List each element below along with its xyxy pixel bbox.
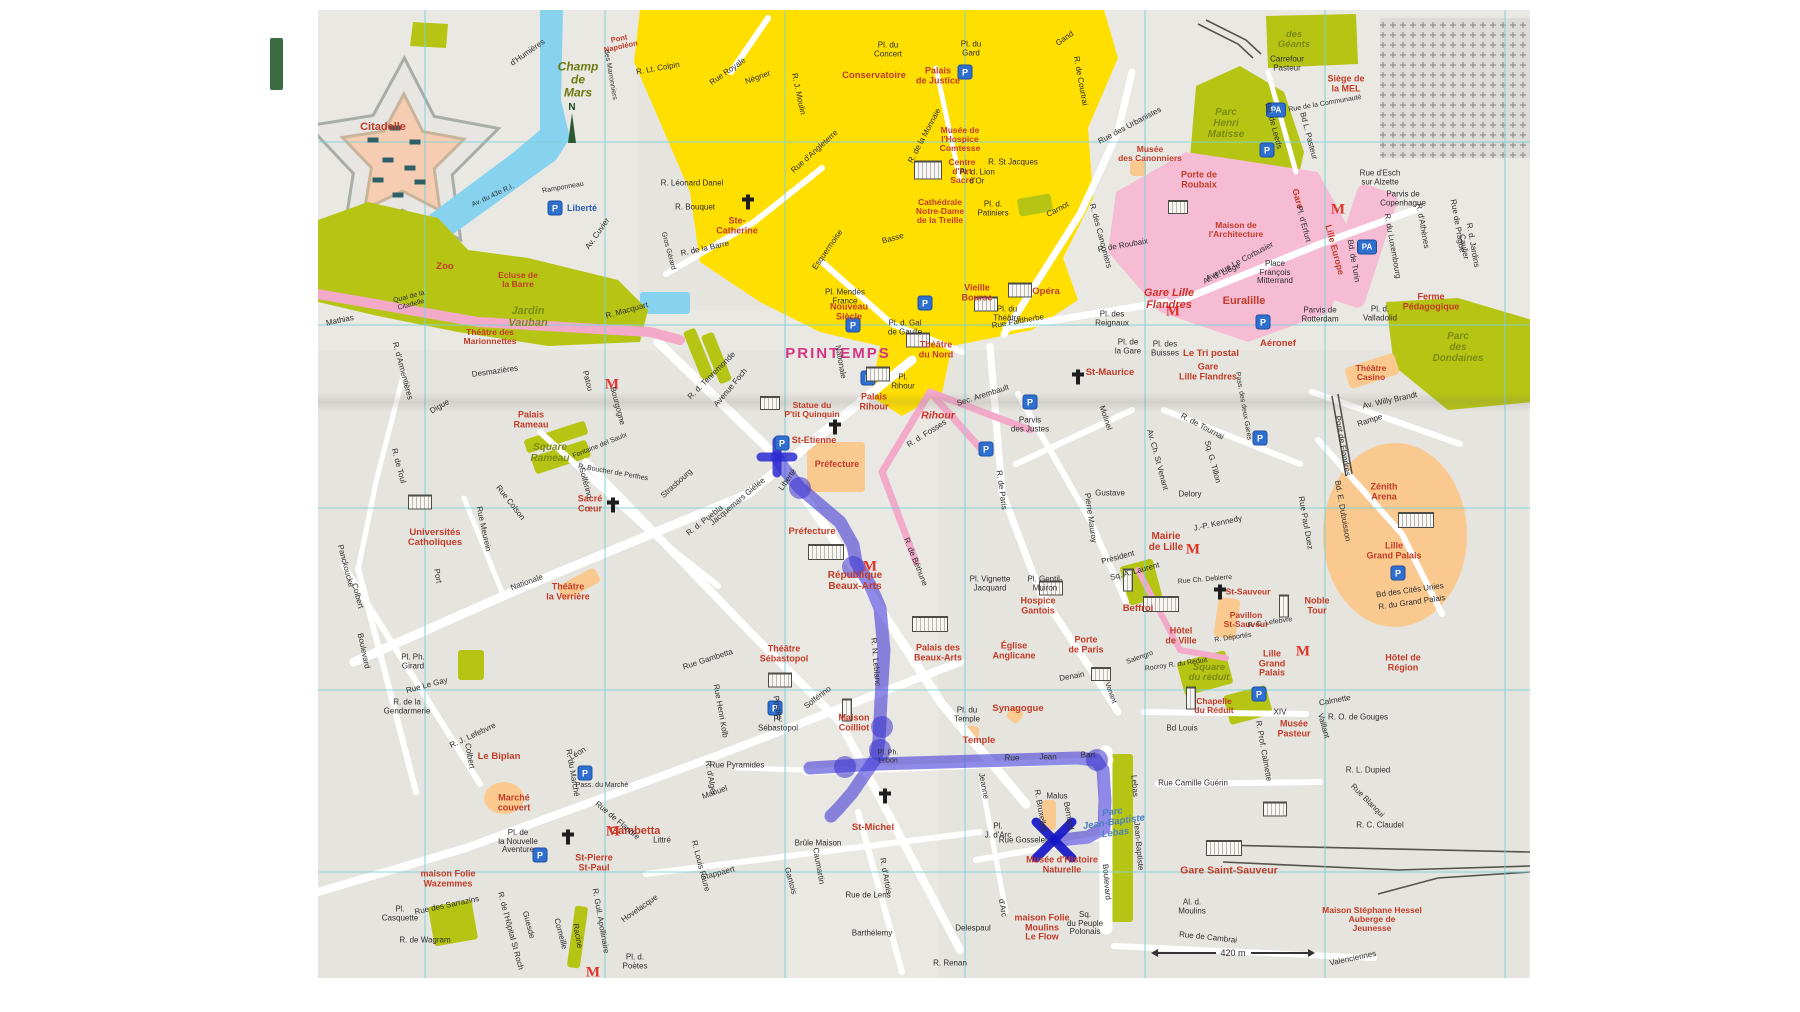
poi-label: Marché couvert (498, 793, 531, 812)
poi-label: Palais Rameau (513, 410, 548, 429)
street-label: Place François Mitterrand (1257, 260, 1293, 286)
street-label: Sec. Arembault (956, 384, 1010, 409)
street-label: Rue de Lens (845, 892, 890, 901)
scale-arrow-right-icon (1308, 949, 1315, 957)
poi-label: Centre d'Art Sacré (949, 158, 976, 186)
street-label: R. Renan (933, 960, 967, 969)
parking-icon: P (846, 318, 861, 333)
street-label: R. Léonard Danel (661, 180, 724, 189)
street-label: Solférino (577, 467, 594, 500)
poi-label: Temple (963, 736, 996, 746)
building-icon (974, 297, 998, 312)
street-label: Ramponneau (542, 181, 585, 196)
street-label: R. de la Barre (680, 240, 730, 259)
street-label: Littré (653, 837, 671, 846)
street-label: R. de Paris (994, 470, 1008, 510)
street-label: Bernard (1061, 801, 1074, 831)
street-label: Bd L. Pasteur (1298, 111, 1319, 160)
park-label: Champ de Mars (558, 61, 599, 100)
building-icon (760, 396, 780, 410)
metro-icon: M (1166, 305, 1180, 320)
poi-label: Hospice Gantois (1020, 596, 1055, 615)
street-label: Rue Pyramides (710, 762, 765, 771)
building-icon (1123, 569, 1133, 592)
parking-icon: P (1260, 143, 1275, 158)
poi-label: Le Tri postal (1183, 349, 1239, 359)
street-label: Jeanne (976, 772, 989, 799)
poi-label: Musée des Canonniers (1118, 145, 1182, 163)
street-label: R. d'Armentières (390, 341, 414, 401)
street-label: R. de Toul (389, 448, 407, 485)
poi-label: Aéronef (1260, 339, 1296, 349)
street-label: Rue des Urbanistes (1097, 106, 1163, 147)
street-label: Pl. Sébastopol (758, 715, 798, 732)
street-label: R. St Jacques (988, 159, 1038, 168)
street-label: Bd Louis (1166, 725, 1197, 734)
poi-label: Ecluse de la Barre (498, 271, 538, 289)
parking-icon: P (1252, 687, 1267, 702)
street-label: R. des Canonniers (1087, 203, 1112, 269)
metro-icon: M (606, 825, 620, 840)
street-label: Fontaine del Saulx (572, 432, 629, 461)
street-label: Gantois (782, 867, 797, 896)
street-label: Pl. des Reignaux (1095, 310, 1129, 327)
building-icon (866, 367, 890, 382)
street-label: R. C. Lefebvre (1247, 616, 1293, 630)
poi-label: Le Biplan (478, 752, 521, 762)
lille-tourist-map[interactable]: MMMMMMMMPPPPPPPPPPPPPPPPPAPACitadelleZoo… (318, 10, 1530, 978)
street-label: R. Guil. Apollinaire (590, 888, 610, 954)
parking-icon: P (1253, 431, 1268, 446)
street-label: Solférino (803, 685, 833, 711)
street-label: Rue de Cambrai (1179, 931, 1238, 946)
poi-label: Théâtre Sébastopol (760, 644, 809, 663)
building-icon (1091, 667, 1111, 681)
parking-icon: P (979, 442, 994, 457)
street-label: R. d'Athènes (1414, 203, 1430, 249)
street-label: Gustave (1095, 490, 1125, 499)
street-label: R. N. Leblanc (869, 637, 882, 686)
street-label: R. d'Alger (703, 760, 718, 796)
street-label: Rue Blanqui (1349, 783, 1386, 820)
building-icon (408, 495, 432, 510)
building-icon (1263, 802, 1287, 817)
street-label: Desmazières (471, 364, 518, 379)
street-label: R. de la Monnaie (907, 107, 943, 164)
north-compass: N (560, 102, 584, 143)
poi-label: maison Folie Moulins Le Flow (1014, 913, 1069, 942)
poi-label: Gare (1290, 188, 1305, 210)
street-label: Gros Gérard (659, 231, 676, 271)
building-icon (1039, 581, 1063, 596)
street-label: R. d. Jardins Caulier (1454, 214, 1482, 278)
street-label: R. du Grand Palais (1378, 594, 1446, 612)
street-label: Pl. des Buisses (1151, 340, 1179, 357)
street-label: Al. d. Liège (1202, 262, 1242, 287)
building-icon (405, 166, 416, 171)
street-label: R. Bouquet (675, 204, 715, 213)
street-label: R. C. Claudel (1356, 822, 1404, 831)
poi-label: Chapelle du Réduit (1194, 697, 1233, 715)
parking-icon: P (958, 65, 973, 80)
street-label: Pierre Mauroy (1082, 493, 1098, 544)
street-label: des Marronniers (602, 49, 618, 100)
street-label: Rue Paul Duez (1296, 496, 1314, 550)
street-label: Hovelacque (620, 893, 660, 924)
street-label: Nationale (833, 345, 847, 380)
street-label: R. Macquart (605, 301, 649, 321)
street-label: Pl. Vignette Jacquard (970, 575, 1011, 592)
parking-relay-icon: PA (1357, 240, 1377, 255)
metro-icon: M (605, 378, 619, 393)
street-label: Vonant (1103, 681, 1118, 704)
poi-label: Zoo (436, 262, 453, 272)
poi-label: Palais des Beaux-Arts (914, 643, 962, 662)
parking-icon: P (548, 201, 563, 216)
poi-label: St-Etienne (792, 436, 837, 446)
street-label: Rue Ch. Debierre (1178, 574, 1233, 586)
building-icon (842, 699, 852, 722)
street-label: Rampe (1356, 413, 1383, 429)
scale-bar: 420 m (1151, 948, 1315, 958)
street-label: R. du Luxembourg (1382, 213, 1402, 279)
street-label: Rue Le Gay (405, 676, 448, 695)
street-label: Négrier (744, 69, 772, 86)
street-label: Stappaert (700, 865, 736, 882)
street-label: Malus (1046, 793, 1067, 802)
parking-icon: P (1391, 566, 1406, 581)
building-icon (906, 333, 930, 348)
street-label: Sq. A. Laurent (1109, 561, 1160, 582)
poi-label: Noble Tour (1304, 596, 1329, 615)
street-label: Sq. du Peuple Polonais (1067, 911, 1103, 937)
street-label: Rue Colson (494, 484, 527, 522)
poi-label: Sacré Cœur (578, 494, 603, 513)
street-label: Rue de la Communauté (1288, 94, 1362, 114)
parking-icon: P (578, 766, 593, 781)
poi-label: Palais de Justice (916, 66, 960, 85)
poi-label: Hôtel de Ville (1165, 626, 1196, 645)
poi-label: Hôtel de Région (1385, 653, 1421, 672)
street-label: Jean-Baptiste (1132, 821, 1145, 870)
parking-icon: P (775, 436, 790, 451)
poi-label: Musée d'Histoire Naturelle (1026, 855, 1098, 874)
poi-label: Euralille (1223, 296, 1266, 308)
street-label: Parvis des Justes (1011, 416, 1049, 433)
street-label: R. d. Puebla (685, 504, 725, 538)
street-label: Pl. Ph. Lebon (878, 749, 899, 764)
poi-label: Opéra (1032, 287, 1059, 297)
street-label: Pl. d. Valladolid (1363, 305, 1397, 322)
street-label: Pass. des deux Gares (1233, 371, 1252, 440)
street-label: Vaillant (1316, 712, 1331, 739)
poi-label: Lille Europe (1323, 224, 1346, 276)
street-label: Colbert (349, 582, 364, 609)
street-label: Esquermoise (811, 228, 845, 271)
church-cross-icon (833, 420, 837, 435)
compass-letter: N (560, 102, 584, 113)
street-label: Pl. d. Lion d'Or (959, 168, 995, 185)
map-labels-layer: MMMMMMMMPPPPPPPPPPPPPPPPPAPACitadelleZoo… (318, 10, 1530, 978)
street-label: XIV (1274, 709, 1287, 718)
street-label: Molinel (1097, 405, 1113, 432)
park-label: Square Rameau (531, 443, 570, 465)
street-label: Boulevard (355, 632, 371, 669)
street-label: Pl. Mendès France (825, 288, 865, 305)
street-label: Port (431, 568, 442, 584)
street-label: Pl. J. d'Arc (985, 822, 1011, 839)
poi-label: maison Folie Wazemmes (420, 869, 475, 888)
poi-label: Palais Rihour (860, 392, 889, 411)
street-label: Racine (571, 923, 584, 949)
street-label: R. Louis Faure (689, 840, 711, 893)
street-label: Pl. du Concert (874, 41, 902, 58)
parking-icon: P (1256, 315, 1271, 330)
street-label: R. Bruxelles (1032, 789, 1048, 833)
street-label: R. de l'Hôpital St Roch (495, 891, 524, 971)
street-label: R. d. Fosses (906, 418, 949, 449)
poi-label: Préfecture (789, 527, 836, 537)
street-label: Rocroy R. du Réduit (1144, 657, 1207, 673)
street-label: Rue Meurein (474, 506, 492, 553)
street-label: Rue Gosselet (999, 837, 1047, 846)
park-label: Square du réduit (1189, 663, 1230, 684)
street-label: R. J. Lefebvre (449, 722, 498, 751)
poi-label: Universités Catholiques (408, 528, 462, 549)
poi-label: St-Sauveur (1226, 587, 1271, 596)
street-label: Pl. Casquette (382, 905, 418, 922)
street-label: Lebas (1129, 775, 1139, 797)
street-label: Rue Faidherbe (991, 313, 1045, 331)
street-label: Delory (1178, 491, 1201, 500)
street-label: R. d'Artois (878, 857, 893, 895)
street-label: Pl. d. Patiniers (977, 200, 1008, 217)
metro-icon: M (1331, 203, 1345, 218)
street-label: Pont de Flandres (1332, 415, 1351, 477)
scale-bar-text: 420 m (1216, 948, 1251, 958)
street-label: R. de Béthune (901, 537, 928, 588)
street-label: Pl. d'Erfurt (1294, 205, 1312, 243)
building-icon (1168, 200, 1188, 214)
building-icon (912, 616, 948, 632)
street-label: Pl. du Gard (961, 40, 981, 57)
street-label: Pl. Rihour (891, 373, 915, 390)
street-label: Manuel (701, 784, 729, 801)
park-label: des Géants (1278, 30, 1310, 51)
poi-label: Pont Napoléon (602, 32, 639, 55)
poi-label: Porte de Roubaix (1181, 170, 1217, 189)
poi-label: Mairie de Lille (1149, 532, 1183, 554)
poi-label: St-Pierre St-Paul (575, 853, 613, 872)
church-cross-icon (611, 498, 615, 513)
street-label: Pl. Ph. Girard (401, 653, 425, 670)
poi-label: Zénith Arena (1371, 482, 1398, 501)
street-label: Liberté (777, 468, 798, 493)
poi-label: Église Anglicane (992, 641, 1035, 660)
street-label: Rue Royale (708, 56, 747, 87)
poi-label: Synagogue (992, 704, 1043, 714)
building-icon (768, 673, 792, 688)
metro-icon: M (1186, 543, 1200, 558)
street-label: R. Prof. Calmette (1253, 720, 1272, 782)
street-label: Colbert (463, 743, 476, 770)
street-label: Caumartin (811, 847, 826, 885)
street-label: Rue d'Esch sur Alzette (1360, 169, 1401, 186)
street-label: Avenue Foch (713, 367, 750, 409)
street-label: Rue Henri Kolb (711, 684, 729, 739)
street-label: R. Déportés (1214, 632, 1252, 645)
street-label: Pl. d. Poètes (623, 953, 648, 970)
metro-icon: M (863, 560, 877, 575)
park-label: Parc Jean-Baptiste Lebas (1081, 803, 1147, 842)
poi-label: Théâtre la Verrière (546, 582, 590, 601)
street-label: Nationale (510, 573, 545, 593)
street-label: R. d. Tenremonde (687, 351, 738, 402)
street-label: Bart (1081, 752, 1096, 761)
poi-label: Gare Lille Flandres (1179, 362, 1237, 381)
poi-label: Lille Grand Palais (1366, 541, 1421, 560)
building-icon (1279, 595, 1289, 618)
street-label: d'Arc (996, 898, 1008, 917)
poi-label: Siège de la MEL (1327, 74, 1364, 93)
poi-label: Lille Grand Palais (1259, 649, 1286, 678)
building-icon (808, 544, 844, 560)
building-icon (415, 180, 426, 185)
poi-label: Gare Saint-Sauveur (1180, 865, 1277, 876)
poi-label: Théâtre Casino (1356, 364, 1387, 382)
church-cross-icon (566, 830, 570, 845)
church-cross-icon (746, 195, 750, 210)
street-label: R. de Courtrai (1071, 56, 1088, 107)
street-label: Delespaul (955, 925, 991, 934)
street-label: Jacquemars Giélée (709, 477, 767, 528)
metro-icon: M (1296, 645, 1310, 660)
street-label: Boulevard (1100, 864, 1112, 901)
street-label: Rue d'Angleterre (790, 129, 840, 175)
street-label: Pass. du Marché (576, 782, 629, 790)
street-label: Guesde (520, 910, 536, 939)
store-label: PRINTEMPS (785, 346, 891, 362)
building-icon (368, 138, 379, 143)
street-label: Rue (1005, 755, 1020, 764)
park-label: Parc des Dondaines (1432, 332, 1483, 364)
poi-label: Préfecture (815, 460, 860, 470)
street-label: R. Lt. Colpin (636, 61, 681, 77)
street-label: Strasbourg (660, 468, 695, 501)
street-label: Pl. de la Gare (1115, 338, 1141, 355)
street-label: J.-P. Kennedy (1193, 515, 1243, 534)
building-icon (1398, 512, 1434, 528)
street-label: Rue des Sarrazins (414, 895, 480, 917)
poi-label: Ste- Catherine (716, 216, 758, 235)
scale-arrow-left-icon (1151, 949, 1158, 957)
building-icon (1143, 596, 1179, 612)
street-label: Gand (1055, 30, 1076, 48)
street-label: Digue (429, 398, 451, 416)
street-label: Patou (580, 370, 594, 392)
poi-label: Pavillon St-Sauveur (1224, 611, 1269, 629)
compass-arrow-icon (568, 113, 576, 143)
street-label: Bd. E. Dubuisson (1332, 480, 1351, 542)
poi-label: Maison Stéphane Hessel Auberge de Jeunes… (1322, 906, 1422, 934)
street-label: Basse (881, 232, 905, 246)
poi-label: Théâtre des Marionnettes (464, 328, 517, 346)
street-label: Léon (568, 746, 588, 763)
street-label: R. de la Gendarmerie (384, 698, 431, 715)
street-label: Brûle Maison (795, 840, 842, 849)
street-label: Valenciennes (1329, 950, 1377, 968)
park-label: Jardin Vauban (508, 306, 547, 330)
street-label: Av. Willy Brandt (1362, 391, 1418, 411)
street-label: Liberté (567, 204, 597, 214)
street-label: Calmette (1318, 694, 1351, 708)
street-label: R. J. Moulin (789, 72, 806, 115)
street-label: Barthélemy (852, 930, 892, 939)
metro-icon: M (586, 966, 600, 979)
street-label: Mathias (325, 314, 354, 328)
street-label: Corneille (552, 918, 569, 951)
street-label: Carnot (1045, 201, 1070, 220)
street-label: R. de Wagram (399, 937, 450, 946)
poi-label: St-Maurice (1086, 368, 1135, 378)
street-label: R. de Tournai (1179, 412, 1225, 442)
street-label: Rue Camille Guérin (1158, 780, 1228, 789)
poi-label: Musée Pasteur (1277, 719, 1310, 738)
street-label: Bd des Cités Unies (1376, 582, 1445, 600)
street-label: Rue Gambetta (682, 648, 734, 672)
park-label: Parc Henri Matisse (1208, 108, 1245, 140)
street-label: Av. Cuvier (584, 217, 612, 252)
street-label: Pl. du Temple (954, 706, 980, 723)
poi-label: St-Michel (852, 823, 894, 833)
church-cross-icon (1076, 370, 1080, 385)
street-label: Parvis de Copenhague (1380, 190, 1426, 207)
street-label: d'Humières (509, 38, 547, 68)
building-icon (373, 178, 384, 183)
parking-icon: P (768, 701, 783, 716)
poi-label: Porte de Paris (1068, 635, 1103, 654)
building-icon (914, 161, 942, 180)
map-edge-strip (270, 38, 283, 90)
building-icon (1206, 840, 1242, 856)
parking-icon: P (533, 848, 548, 863)
parking-icon: P (1023, 395, 1038, 410)
street-label: Parvis de Rotterdam (1301, 306, 1338, 323)
street-label: Av. Ch. St Venant (1145, 429, 1169, 492)
building-icon (390, 126, 401, 131)
street-label: Quai de la Citadelle (393, 290, 428, 313)
building-icon (1186, 687, 1196, 710)
building-icon (1008, 283, 1032, 298)
church-cross-icon (883, 789, 887, 804)
street-label: Président (1101, 549, 1136, 566)
poi-label: Cathédrale Notre-Dame de la Treille (916, 198, 964, 226)
building-icon (393, 193, 404, 198)
poi-label: Conservatoire (842, 71, 906, 81)
parking-relay-icon: PA (1266, 103, 1286, 118)
street-label: Rue de Prague (1448, 199, 1466, 254)
street-label: Carrefour Pasteur (1270, 55, 1304, 72)
street-label: Salengro (1126, 650, 1155, 667)
poi-label: Maison de l'Architecture (1209, 221, 1263, 239)
street-label: R. L. Dupied (1346, 767, 1390, 776)
poi-label: Musée de l'Hospice Comtesse (940, 126, 981, 154)
building-icon (410, 140, 421, 145)
poi-label: Rihour (921, 410, 955, 421)
church-cross-icon (1218, 585, 1222, 600)
parking-icon: P (918, 296, 933, 311)
street-label: Panckoucke (335, 544, 355, 588)
